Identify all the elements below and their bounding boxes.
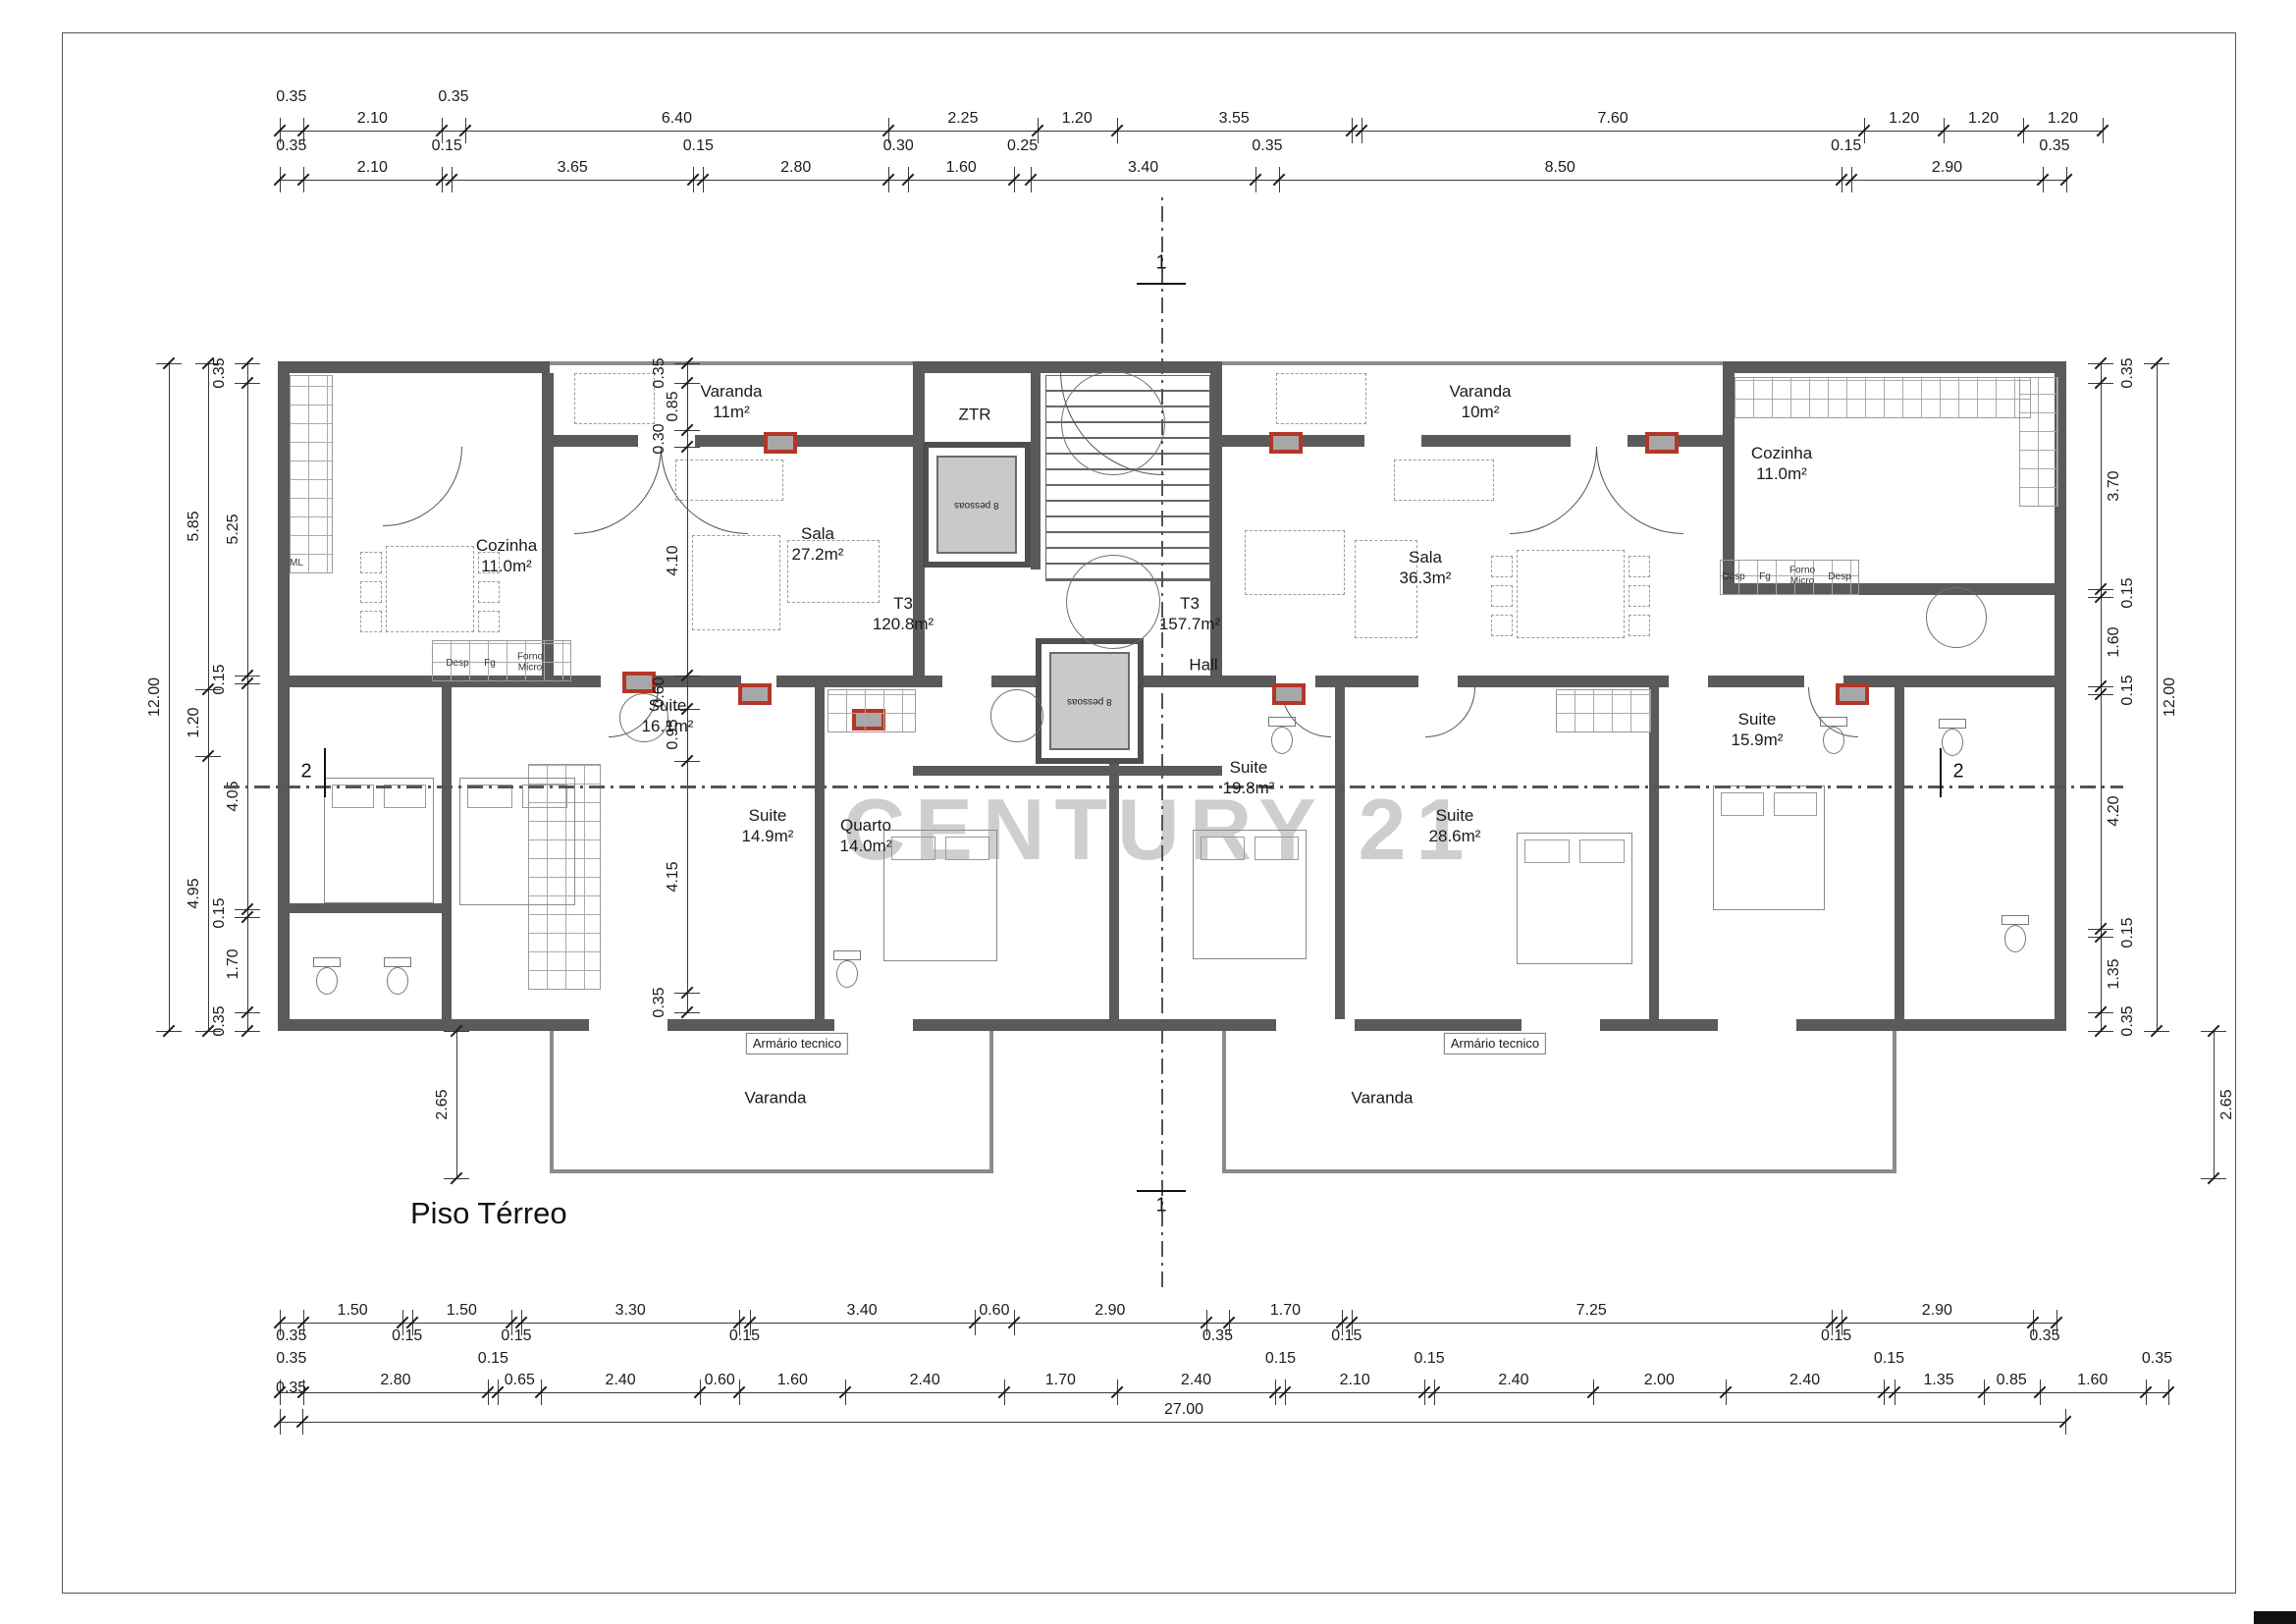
dim-value: 2.10 <box>357 111 388 127</box>
dim-line <box>280 1392 2168 1393</box>
dim-value: 2.10 <box>1340 1373 1370 1388</box>
door-swing-arc <box>383 447 462 526</box>
room-area: 11.0m² <box>481 557 532 575</box>
furniture <box>1276 373 1366 424</box>
toilet-tank <box>2002 915 2029 925</box>
door-swing-arc <box>574 447 662 534</box>
wall-segment <box>1723 361 2066 373</box>
room-label: Hall <box>1189 654 1217 675</box>
wall-segment <box>1895 687 1904 1019</box>
room-area: 14.9m² <box>742 827 794 845</box>
elevator-shaft: 8 pessoas <box>923 442 1031 568</box>
section-line-1 <box>1161 192 1163 1287</box>
dim-value: 0.35 <box>2120 357 2136 388</box>
dim-value: 0.25 <box>1007 138 1038 154</box>
dim-value: 0.35 <box>2120 1006 2136 1037</box>
appliance-label: FornoMicro <box>517 653 543 674</box>
dim-value: 0.15 <box>212 897 228 928</box>
dim-value: 4.10 <box>666 546 681 576</box>
dim-value: 0.15 <box>1331 1328 1362 1344</box>
wall-segment <box>815 687 825 1019</box>
dim-value: 0.15 <box>432 138 462 154</box>
dim-value: 1.60 <box>777 1373 808 1388</box>
cabinet-grid <box>1735 377 2031 418</box>
section-marker-2: 2 <box>300 761 311 784</box>
dim-value: 0.30 <box>652 423 667 454</box>
dim-value: 1.70 <box>1045 1373 1076 1388</box>
pillow <box>1524 839 1570 863</box>
round-fixture <box>1926 587 1987 648</box>
room-label: Varanda11m² <box>700 381 762 423</box>
section-marker-1: 1 <box>1155 1195 1166 1218</box>
dim-value: 0.65 <box>505 1373 535 1388</box>
dim-value: 0.35 <box>438 89 468 105</box>
dim-value: 1.50 <box>338 1303 368 1319</box>
balcony-rail <box>550 1169 993 1173</box>
dim-value: 0.15 <box>2120 577 2136 608</box>
dim-value: 0.60 <box>979 1303 1009 1319</box>
room-label: Sala36.3m² <box>1400 547 1452 589</box>
door-swing-arc <box>1510 447 1597 534</box>
balcony-rail <box>1893 1031 1896 1173</box>
dim-value: 1.50 <box>447 1303 477 1319</box>
dim-value: 0.15 <box>212 664 228 694</box>
cabinet-grid <box>1556 689 1651 732</box>
appliance-label: Desp <box>446 659 468 670</box>
bed <box>1517 833 1632 964</box>
chair <box>1629 615 1650 636</box>
wall-vent-marker <box>1272 683 1306 705</box>
dim-value: 12.00 <box>147 677 163 717</box>
dim-value: 0.35 <box>1252 138 1282 154</box>
wall-segment <box>278 1019 2066 1031</box>
room-label: Suite14.9m² <box>742 805 794 847</box>
chair <box>1629 585 1650 607</box>
dim-value: 1.35 <box>2107 959 2122 990</box>
door-opening <box>1669 676 1708 687</box>
section-line-2 <box>224 785 2123 788</box>
dim-value: 2.80 <box>780 160 811 176</box>
appliance-label: Desp <box>1828 572 1850 583</box>
pillow <box>1255 837 1299 860</box>
dim-line <box>280 1422 2065 1423</box>
bed <box>883 830 997 961</box>
room-area: 120.8m² <box>873 615 934 633</box>
room-label: Armário tecnico <box>746 1033 848 1055</box>
dim-value: 1.20 <box>187 707 202 737</box>
room-area: 14.0m² <box>840 837 892 855</box>
pillow <box>1721 792 1765 816</box>
furniture <box>675 460 783 501</box>
dim-value: 2.40 <box>1498 1373 1528 1388</box>
wall-vent-marker <box>764 432 797 454</box>
drawing-layer: 8 pessoas8 pessoas0.352.100.356.402.251.… <box>0 0 2296 1624</box>
dim-value: 2.65 <box>2219 1090 2235 1120</box>
toilet <box>1823 727 1844 754</box>
room-label: Sala27.2m² <box>792 523 844 566</box>
dim-value: 4.15 <box>666 861 681 892</box>
dim-line <box>687 363 688 1012</box>
section-marker-tick <box>1137 283 1186 285</box>
room-label: Cozinha11.0m² <box>1751 443 1812 485</box>
dim-value: 3.40 <box>847 1303 878 1319</box>
dim-value: 3.40 <box>1128 160 1158 176</box>
door-opening <box>1571 435 1628 447</box>
dim-line <box>280 1323 2056 1324</box>
wall-segment <box>1649 687 1659 1019</box>
section-marker-1: 1 <box>1155 252 1166 275</box>
chair <box>478 581 500 603</box>
dim-line <box>2101 363 2102 1031</box>
wall-vent-marker <box>1645 432 1679 454</box>
room-area: 27.2m² <box>792 545 844 564</box>
dim-value: 0.35 <box>212 1006 228 1037</box>
round-fixture <box>990 689 1043 742</box>
dim-value: 1.70 <box>1270 1303 1301 1319</box>
room-label: Quarto14.0m² <box>840 815 892 857</box>
room-label: Varanda <box>744 1087 806 1108</box>
appliance-label: FornoMicro <box>1789 567 1815 587</box>
dim-value: 0.35 <box>276 1380 306 1396</box>
dim-value: 3.65 <box>558 160 588 176</box>
furniture <box>1517 550 1625 638</box>
chair <box>360 581 382 603</box>
chair <box>1491 585 1513 607</box>
bed <box>1193 830 1307 959</box>
wall-segment <box>278 903 452 913</box>
balcony-rail <box>1222 1031 1226 1173</box>
dim-value: 2.90 <box>1095 1303 1125 1319</box>
room-area: 11m² <box>713 403 749 421</box>
dim-value: 0.15 <box>478 1351 508 1367</box>
dim-value: 0.15 <box>1831 138 1861 154</box>
pillow <box>1774 792 1818 816</box>
section-marker-tick <box>1137 1190 1186 1192</box>
cabinet-grid <box>290 375 333 573</box>
elevator-car: 8 pessoas <box>1049 652 1130 750</box>
section-marker-2: 2 <box>1952 761 1963 784</box>
room-area: 16.1m² <box>642 717 694 735</box>
bed <box>324 778 434 903</box>
toilet-tank <box>1268 717 1296 727</box>
cabinet-grid <box>2019 377 2058 507</box>
dim-line <box>456 1031 457 1178</box>
wall-vent-marker <box>1269 432 1303 454</box>
room-label: Suite15.9m² <box>1732 709 1784 751</box>
room-label: Suite19.8m² <box>1223 757 1275 799</box>
dim-value: 4.20 <box>2107 796 2122 827</box>
door-opening <box>1418 676 1458 687</box>
bed <box>459 778 575 905</box>
dim-value: 0.15 <box>2120 917 2136 947</box>
toilet <box>1942 729 1963 756</box>
furniture <box>386 546 474 632</box>
section-marker-tick <box>324 748 326 797</box>
pillow <box>332 785 375 808</box>
pillow <box>522 785 567 808</box>
dim-value: 0.15 <box>2120 676 2136 706</box>
dim-line <box>280 180 2066 181</box>
toilet-tank <box>313 957 341 967</box>
appliance-label: Desp <box>1722 572 1744 583</box>
pillow <box>1579 839 1625 863</box>
dim-value: 2.65 <box>435 1090 451 1120</box>
toilet-tank <box>384 957 411 967</box>
appliance-label: Fg <box>1759 572 1771 583</box>
dim-value: 12.00 <box>2163 677 2178 717</box>
dim-line <box>247 363 248 1031</box>
room-area: 11.0m² <box>1756 464 1807 483</box>
balcony-rail <box>550 1031 554 1173</box>
dim-value: 2.40 <box>1789 1373 1820 1388</box>
dim-value: 6.40 <box>662 111 692 127</box>
wall-segment <box>1335 687 1345 1019</box>
pillow <box>467 785 512 808</box>
room-area: 157.7m² <box>1159 615 1220 633</box>
room-label: Suite16.1m² <box>642 695 694 737</box>
chair <box>1629 556 1650 577</box>
wall-segment <box>1031 373 1041 569</box>
balcony-rail <box>550 361 913 365</box>
wall-segment <box>913 766 1222 776</box>
elevator-capacity-label: 8 pessoas <box>954 500 999 511</box>
room-label: ZTR <box>958 404 990 424</box>
dim-value: 0.35 <box>652 357 667 388</box>
balcony-rail <box>1222 361 1723 365</box>
room-area: 10m² <box>1462 403 1500 421</box>
elevator-car: 8 pessoas <box>936 456 1017 554</box>
dim-line <box>2214 1031 2215 1178</box>
dim-value: 0.35 <box>276 1351 306 1367</box>
chair <box>360 552 382 573</box>
dim-value: 2.00 <box>1644 1373 1675 1388</box>
dim-value: 0.15 <box>683 138 714 154</box>
appliance-label: ML <box>290 559 303 569</box>
dim-value: 0.15 <box>1414 1351 1444 1367</box>
dim-value: 4.95 <box>187 878 202 908</box>
dim-value: 1.20 <box>1968 111 1999 127</box>
room-label: Varanda <box>1351 1087 1413 1108</box>
furniture <box>692 535 780 630</box>
pillow <box>384 785 427 808</box>
dim-value: 1.60 <box>2107 626 2122 657</box>
door-opening <box>1276 1019 1355 1031</box>
dim-value: 1.35 <box>1923 1373 1953 1388</box>
dim-line <box>169 363 170 1031</box>
dim-value: 3.55 <box>1219 111 1250 127</box>
dim-value: 0.35 <box>2142 1351 2172 1367</box>
cabinet-grid <box>828 689 916 732</box>
dim-value: 0.35 <box>652 987 667 1017</box>
dim-value: 0.30 <box>883 138 914 154</box>
furniture <box>1394 460 1494 501</box>
dim-value: 0.85 <box>1997 1373 2027 1388</box>
door-opening <box>589 1019 667 1031</box>
dim-value: 1.20 <box>1889 111 1919 127</box>
dim-value: 0.35 <box>276 138 306 154</box>
pillow <box>891 837 935 860</box>
toilet <box>2004 925 2026 952</box>
bed <box>1713 785 1825 910</box>
dim-value: 1.70 <box>226 949 241 980</box>
dim-value: 2.40 <box>606 1373 636 1388</box>
chair <box>478 611 500 632</box>
room-area: 36.3m² <box>1400 568 1452 587</box>
wall-segment <box>442 687 452 1019</box>
wall-vent-marker <box>738 683 772 705</box>
dim-line <box>2157 363 2158 1031</box>
toilet <box>836 960 858 988</box>
room-area: 19.8m² <box>1223 779 1275 797</box>
door-swing-arc <box>1425 687 1475 737</box>
dim-line <box>280 131 2103 132</box>
toilet <box>316 967 338 995</box>
elevator-capacity-label: 8 pessoas <box>1067 696 1112 707</box>
chair <box>360 611 382 632</box>
room-label: Varanda10m² <box>1449 381 1511 423</box>
dim-value: 2.40 <box>910 1373 940 1388</box>
dim-value: 0.15 <box>501 1328 531 1344</box>
furniture <box>574 373 655 424</box>
chair <box>1491 615 1513 636</box>
dim-value: 1.60 <box>2077 1373 2108 1388</box>
dim-value: 0.15 <box>1265 1351 1296 1367</box>
door-opening <box>942 676 991 687</box>
dim-value: 0.60 <box>705 1373 735 1388</box>
room-label: Cozinha11.0m² <box>476 535 537 577</box>
room-label: T3157.7m² <box>1159 593 1220 635</box>
dim-value: 5.25 <box>226 514 241 544</box>
pillow <box>1201 837 1245 860</box>
furniture <box>1245 530 1345 595</box>
dim-value: 7.25 <box>1576 1303 1607 1319</box>
room-label: Armário tecnico <box>1444 1033 1546 1055</box>
room-label: Suite28.6m² <box>1429 805 1481 847</box>
dim-value: 0.15 <box>392 1328 422 1344</box>
toilet <box>387 967 408 995</box>
dim-value: 1.60 <box>946 160 977 176</box>
dim-value: 2.10 <box>357 160 388 176</box>
wall-segment <box>550 435 913 447</box>
dim-value: 2.80 <box>380 1373 410 1388</box>
chair <box>1491 556 1513 577</box>
dim-line <box>208 363 209 1031</box>
dim-value: 2.90 <box>1922 1303 1952 1319</box>
door-opening <box>1718 1019 1796 1031</box>
elevator-shaft: 8 pessoas <box>1036 638 1144 764</box>
dim-value: 1.20 <box>1062 111 1093 127</box>
door-opening <box>1364 435 1421 447</box>
dim-value: 2.25 <box>947 111 978 127</box>
round-fixture <box>1066 555 1160 649</box>
door-opening <box>834 1019 913 1031</box>
appliance-label: Fg <box>484 659 496 670</box>
dim-value: 27.00 <box>1164 1402 1203 1418</box>
dim-value: 0.35 <box>2039 138 2069 154</box>
wall-segment <box>1210 373 1222 687</box>
dim-value: 2.40 <box>1181 1373 1211 1388</box>
dim-value: 0.15 <box>1874 1351 1904 1367</box>
dim-value: 8.50 <box>1545 160 1575 176</box>
toilet-tank <box>1939 719 1966 729</box>
dim-value: 0.85 <box>666 391 681 421</box>
dim-value: 2.90 <box>1932 160 1962 176</box>
toilet-tank <box>833 950 861 960</box>
dim-value: 7.60 <box>1598 111 1629 127</box>
room-area: 15.9m² <box>1732 731 1784 749</box>
wall-segment <box>278 361 550 373</box>
dim-value: 0.35 <box>212 357 228 388</box>
toilet <box>1271 727 1293 754</box>
dim-value: 5.85 <box>187 511 202 541</box>
wall-vent-marker <box>1836 683 1869 705</box>
section-marker-tick <box>1940 748 1942 797</box>
balcony-rail <box>1222 1169 1896 1173</box>
dim-value: 3.30 <box>615 1303 646 1319</box>
balcony-rail <box>989 1031 993 1173</box>
dim-value: 1.20 <box>2048 111 2078 127</box>
toilet-tank <box>1820 717 1847 727</box>
dim-value: 3.70 <box>2107 470 2122 501</box>
pillow <box>945 837 989 860</box>
room-label: T3120.8m² <box>873 593 934 635</box>
dim-value: 0.15 <box>729 1328 760 1344</box>
floor-plan-canvas: CENTURY 21 Piso Térreo 8 pessoas8 pessoa… <box>0 0 2296 1624</box>
room-area: 28.6m² <box>1429 827 1481 845</box>
door-swing-arc <box>1596 447 1683 534</box>
dim-value: 0.15 <box>1821 1328 1851 1344</box>
wall-segment <box>542 373 554 677</box>
door-opening <box>1522 1019 1600 1031</box>
dim-value: 0.35 <box>276 89 306 105</box>
wall-segment <box>278 361 290 1031</box>
